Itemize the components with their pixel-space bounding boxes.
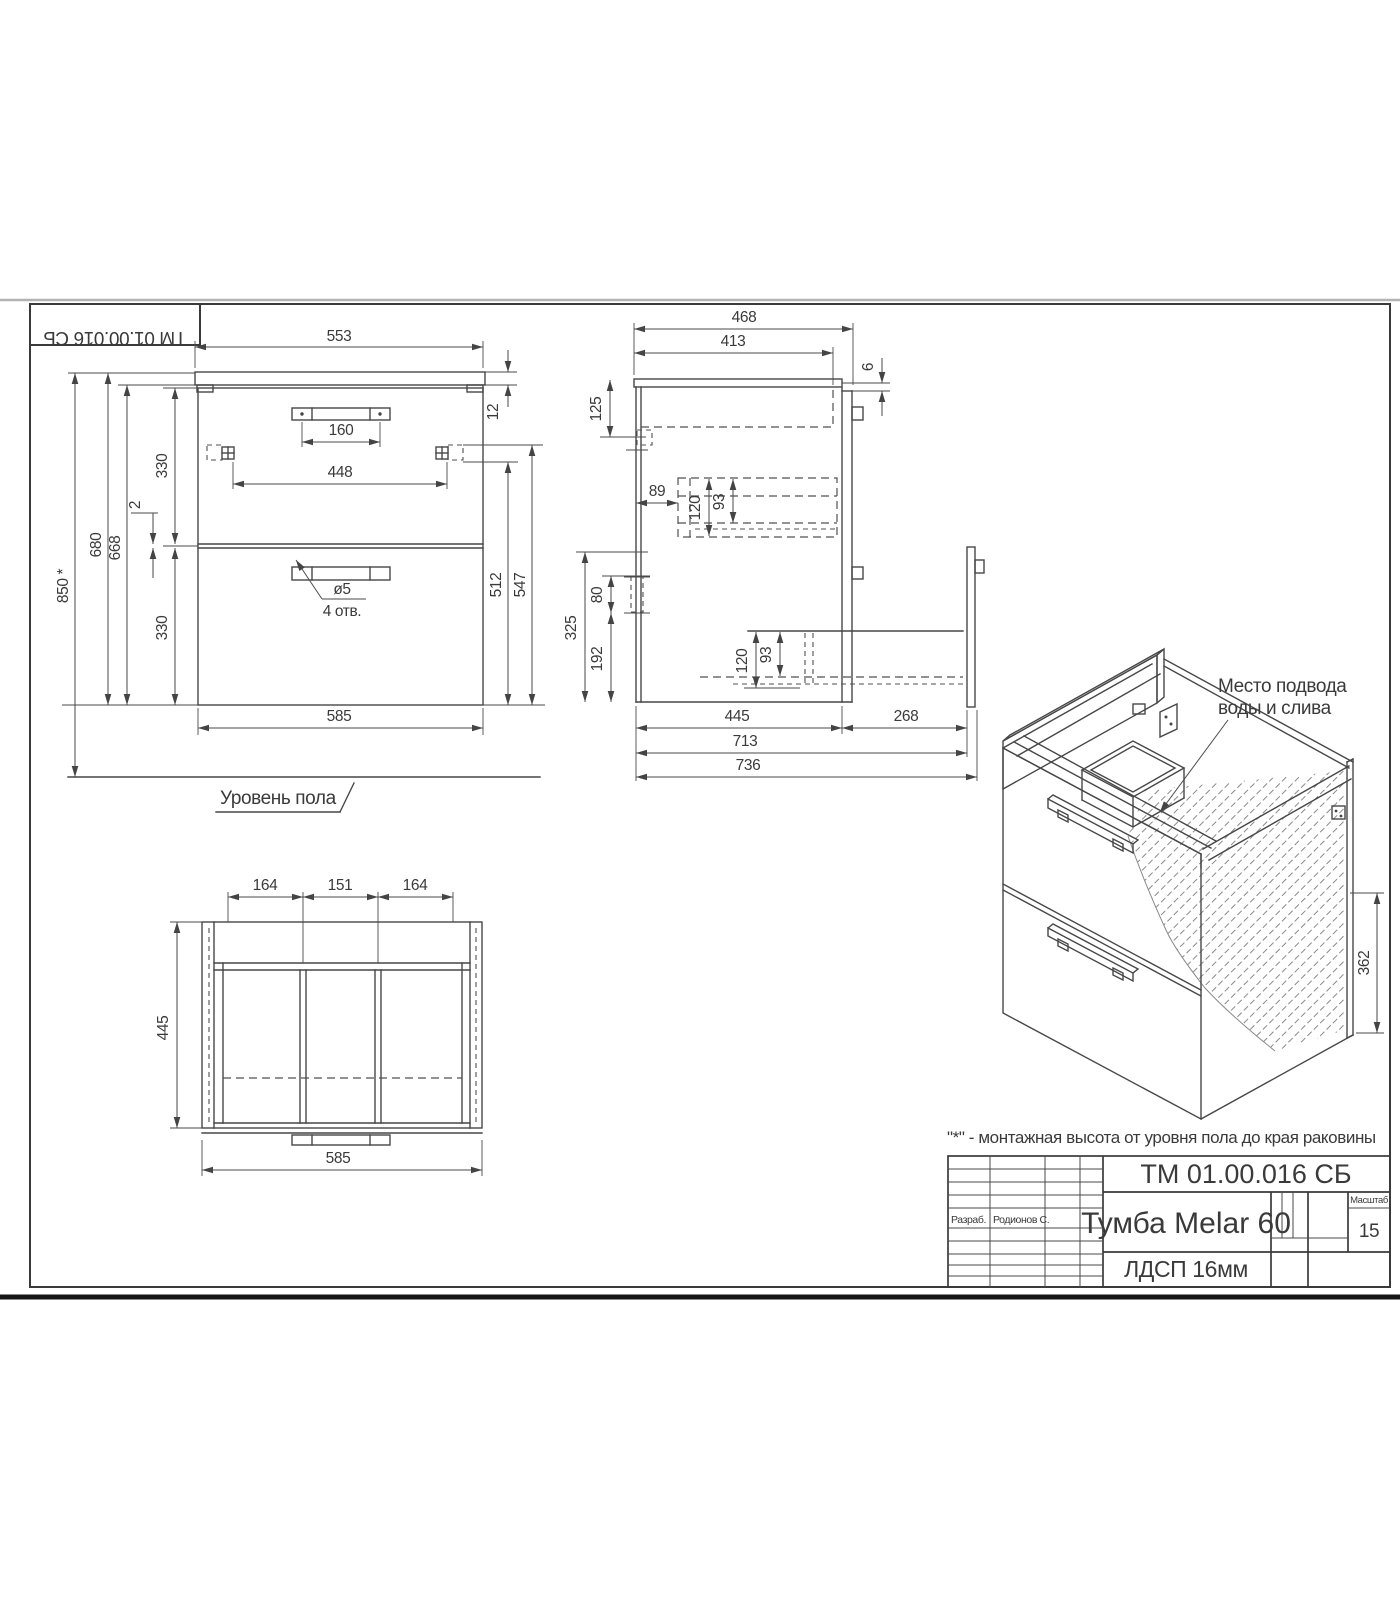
iso-top-handle bbox=[1048, 795, 1138, 853]
dim-160: 160 bbox=[329, 422, 354, 439]
dim-362: 362 bbox=[1356, 951, 1373, 976]
iso-back-panel bbox=[1003, 649, 1177, 789]
dim-413: 413 bbox=[721, 333, 746, 350]
dim-2: 2 bbox=[127, 501, 144, 509]
dim-151: 151 bbox=[328, 877, 353, 894]
dim-585-front: 585 bbox=[327, 708, 352, 725]
dim-125: 125 bbox=[588, 397, 605, 422]
dim-468: 468 bbox=[732, 309, 757, 326]
dim-120-bottom: 120 bbox=[734, 648, 751, 673]
side-view-dimensions: 468 413 6 125 89 120 93 80 325 bbox=[563, 309, 977, 781]
side-view: 468 413 6 125 89 120 93 80 325 bbox=[563, 309, 984, 781]
iso-view: Место подвода воды и слива 362 bbox=[1003, 649, 1384, 1119]
dim-164-right: 164 bbox=[403, 877, 428, 894]
side-wall-bracket bbox=[626, 430, 652, 457]
dim-668: 668 bbox=[107, 536, 124, 561]
hole-dia-label: ø5 bbox=[333, 581, 350, 598]
dim-547: 547 bbox=[512, 573, 529, 598]
corner-stamp: ТМ 01.00.016 СБ bbox=[30, 304, 200, 348]
front-top-handle bbox=[292, 408, 390, 420]
front-view-dimensions: 553 160 448 12 850 * 680 668 bbox=[55, 328, 545, 777]
dim-512: 512 bbox=[488, 573, 505, 598]
callout-line1: Место подвода bbox=[1218, 676, 1347, 697]
scale-value: 15 bbox=[1359, 1221, 1379, 1242]
top-view-handle bbox=[292, 1135, 390, 1145]
dim-585-top: 585 bbox=[326, 1150, 351, 1167]
dim-445-top: 445 bbox=[155, 1016, 172, 1041]
front-bottom-handle bbox=[292, 567, 390, 580]
developed-by-label: Разраб. bbox=[951, 1214, 986, 1226]
dim-330-bottom: 330 bbox=[154, 615, 171, 640]
floor-level-label: Уровень пола bbox=[220, 788, 337, 809]
dim-89: 89 bbox=[649, 483, 665, 500]
dim-6: 6 bbox=[860, 363, 877, 371]
front-view: ø5 4 отв. 553 160 448 12 8 bbox=[55, 328, 545, 812]
dim-12: 12 bbox=[485, 404, 502, 420]
dim-553: 553 bbox=[327, 328, 352, 345]
hole-callout: ø5 4 отв. bbox=[296, 560, 366, 620]
title-block-signature-table: Разраб. Родионов С. bbox=[948, 1156, 1103, 1287]
dim-80: 80 bbox=[589, 586, 606, 603]
floor-level: Уровень пола bbox=[68, 777, 540, 812]
technical-drawing: ТМ 01.00.016 СБ bbox=[0, 0, 1400, 1600]
hatch-area bbox=[1128, 771, 1345, 1051]
top-view: 164 151 164 445 585 bbox=[155, 877, 482, 1176]
dim-192: 192 bbox=[589, 647, 606, 672]
dim-268: 268 bbox=[894, 708, 919, 725]
dim-445-side: 445 bbox=[725, 708, 750, 725]
scale-label: Масштаб bbox=[1350, 1195, 1389, 1206]
front-wall-brackets bbox=[207, 445, 463, 460]
dim-448: 448 bbox=[328, 464, 353, 481]
iso-dimension-362: 362 bbox=[1350, 893, 1384, 1033]
material-spec: ЛДСП 16мм bbox=[1124, 1256, 1248, 1282]
dim-93-bottom: 93 bbox=[758, 647, 775, 663]
product-name: Тумба Melar 60 bbox=[1081, 1207, 1291, 1240]
dim-850: 850 * bbox=[55, 569, 72, 604]
developed-by-name: Родионов С. bbox=[993, 1214, 1049, 1226]
dim-325: 325 bbox=[563, 616, 580, 641]
mounting-height-note: "*" - монтажная высота от уровня пола до… bbox=[947, 1128, 1376, 1147]
title-block: Разраб. Родионов С. ТМ 01.00.016 СБ Тумб… bbox=[948, 1156, 1390, 1287]
drawing-sheet: ТМ 01.00.016 СБ bbox=[0, 0, 1400, 1600]
dim-164-left: 164 bbox=[253, 877, 278, 894]
dim-680: 680 bbox=[88, 532, 105, 557]
dim-736: 736 bbox=[736, 757, 761, 774]
dim-120-top: 120 bbox=[687, 495, 704, 520]
dim-330-top: 330 bbox=[154, 453, 171, 478]
dim-713: 713 bbox=[733, 733, 758, 750]
hole-qty-label: 4 отв. bbox=[323, 603, 361, 620]
corner-stamp-text: ТМ 01.00.016 СБ bbox=[44, 327, 187, 348]
dim-93-top: 93 bbox=[711, 494, 728, 510]
callout-line2: воды и слива bbox=[1218, 698, 1332, 719]
doc-number: ТМ 01.00.016 СБ bbox=[1140, 1159, 1351, 1189]
